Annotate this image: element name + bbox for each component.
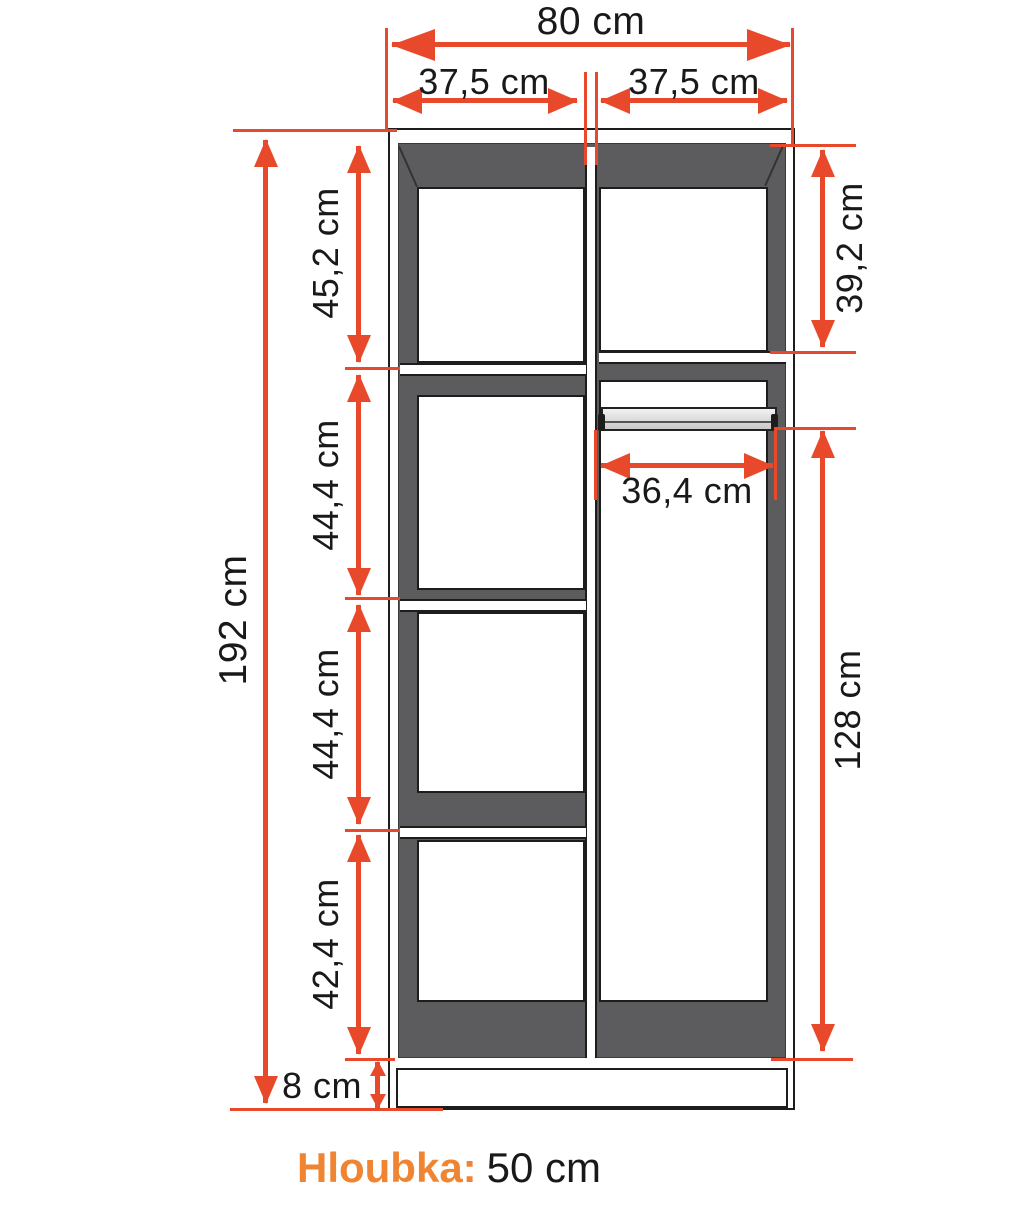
dimension-label-left-section-2: 44,4 cm: [305, 419, 347, 551]
dim-arrow-plinth-height: [375, 1062, 380, 1108]
ext-line: [345, 597, 400, 600]
ext-line: [230, 1108, 443, 1111]
ext-line: [770, 351, 856, 354]
ext-line: [771, 1058, 853, 1061]
hanging-rail: [601, 407, 777, 431]
shelf-compartment-3: [417, 612, 585, 793]
wardrobe-dimension-diagram: 80 cm 37,5 cm 37,5 cm 192 cm 45,2 cm 44,…: [0, 0, 1034, 1207]
dimension-label-rail-width: 36,4 cm: [621, 470, 753, 512]
right-shelf-panel: [599, 351, 786, 364]
rail-end-cap-left: [598, 414, 605, 431]
shelf-compartment-1: [417, 187, 585, 363]
dim-arrow-left-section-3: [356, 605, 361, 824]
dim-arrow-left-section-4: [356, 835, 361, 1054]
dim-arrow-left-section-2: [356, 375, 361, 595]
plinth: [396, 1068, 788, 1108]
ext-line: [774, 427, 777, 500]
dimension-label-hanging-section: 128 cm: [827, 649, 869, 770]
ext-line: [594, 430, 597, 500]
shelf-panel-1: [400, 363, 586, 376]
shelf-panel-2: [400, 599, 586, 612]
dimension-label-right-top-section: 39,2 cm: [829, 182, 871, 314]
ext-line: [345, 367, 400, 370]
depth-caption: Hloubka:50 cm: [297, 1144, 601, 1192]
depth-value: 50 cm: [487, 1144, 601, 1191]
dimension-label-left-section-3: 44,4 cm: [305, 648, 347, 780]
dimension-label-plinth-height: 8 cm: [282, 1065, 362, 1107]
ext-line: [595, 72, 598, 165]
ext-line: [791, 28, 794, 145]
ext-line: [385, 28, 388, 132]
dimension-label-total-width: 80 cm: [537, 0, 646, 44]
dimension-label-total-height: 192 cm: [212, 555, 256, 686]
dimension-label-left-half-width: 37,5 cm: [418, 61, 550, 103]
shelf-compartment-2: [417, 395, 585, 590]
ext-line: [770, 144, 856, 147]
dimension-label-left-section-1: 45,2 cm: [305, 187, 347, 319]
dim-arrow-right-top-section: [820, 150, 825, 347]
ext-line: [345, 829, 400, 832]
shelf-compartment-4: [417, 840, 585, 1002]
dim-arrow-left-section-1: [356, 146, 361, 362]
depth-label: Hloubka:: [297, 1144, 477, 1191]
right-top-compartment: [599, 187, 768, 352]
ext-line: [233, 129, 397, 132]
shelf-panel-3: [400, 826, 586, 839]
dimension-label-right-half-width: 37,5 cm: [628, 61, 760, 103]
dimension-label-left-section-4: 42,4 cm: [305, 878, 347, 1010]
dim-arrow-hanging-section: [820, 431, 825, 1051]
dim-arrow-total-height: [263, 140, 268, 1103]
ext-line: [584, 72, 587, 165]
center-divider-panel: [585, 147, 597, 1058]
dim-arrow-rail-width: [601, 463, 773, 468]
